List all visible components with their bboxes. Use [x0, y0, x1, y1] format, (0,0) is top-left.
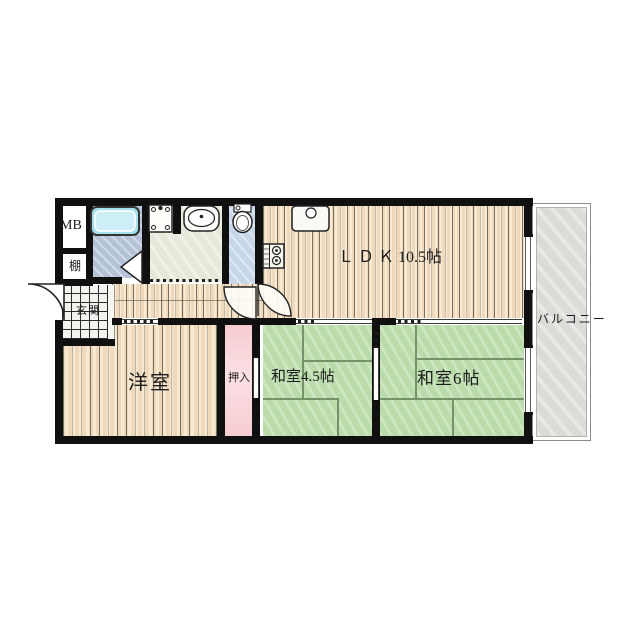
western-room-label: 洋室 [128, 373, 172, 393]
wall [173, 198, 181, 234]
window-pane [530, 237, 531, 290]
washroom-threshold-dashes [150, 279, 221, 282]
wall [263, 318, 296, 325]
opening-dashes [298, 320, 315, 323]
tatami-line [302, 360, 372, 362]
wall [112, 318, 122, 325]
tatami-line [302, 325, 304, 398]
hallway-floor [112, 284, 263, 318]
japanese-room-6-label: 和室6帖 [417, 370, 481, 387]
bathroom-floor [93, 206, 142, 278]
shelf-label: 棚 [69, 260, 81, 272]
japanese-room-45-label: 和室4.5帖 [271, 370, 335, 385]
wall [55, 198, 533, 206]
balcony-label: バルコニー [537, 313, 607, 325]
fusuma-opening-closet [253, 358, 259, 398]
wall [55, 279, 93, 286]
entry-door-arc [28, 284, 64, 320]
window-pane [530, 348, 531, 412]
japanese-room-6-window [524, 345, 533, 415]
window-pane [525, 237, 526, 290]
closet-label: 押入 [228, 373, 250, 384]
opening-dashes [124, 320, 156, 323]
wall [217, 318, 225, 436]
opening-dashes [398, 320, 423, 323]
fusuma-opening-between-tatami [373, 348, 379, 400]
wall [255, 198, 263, 284]
wall [55, 436, 533, 444]
wall [55, 339, 115, 346]
floor-plan: MB 棚 玄関 Ｌ Ｄ Ｋ 10.5帖 バルコニー 洋室 押入 和室4.5帖 和… [0, 0, 640, 640]
floor-joint [112, 300, 263, 301]
window-pane [525, 348, 526, 412]
meter-box-label: MB [60, 219, 82, 233]
tatami-line [452, 398, 454, 437]
wall [55, 248, 93, 254]
tatami-line [263, 398, 337, 400]
tatami-line [337, 398, 339, 437]
wall [158, 318, 263, 325]
wall [222, 198, 229, 284]
toilet-floor [229, 206, 255, 284]
ldk-window [524, 234, 533, 293]
entrance-label: 玄関 [76, 306, 100, 317]
ldk-label: Ｌ Ｄ Ｋ 10.5帖 [338, 250, 442, 266]
wall [55, 198, 63, 284]
washroom-floor [150, 206, 222, 282]
opening-dashes [375, 328, 378, 348]
wall [86, 198, 93, 284]
entrance-step [108, 285, 115, 339]
wall [93, 277, 122, 284]
wall [142, 198, 150, 284]
tatami-line [415, 358, 524, 360]
